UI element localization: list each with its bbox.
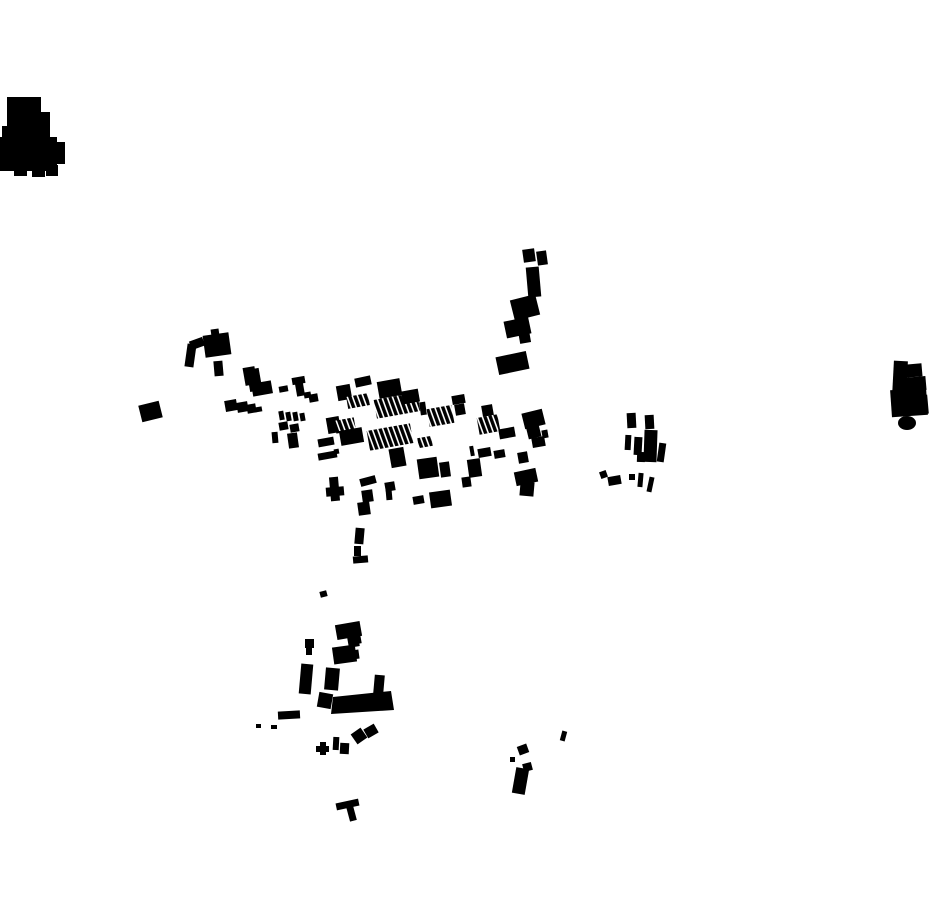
building-footprint xyxy=(629,474,635,480)
building-footprint xyxy=(454,403,466,416)
building-footprint xyxy=(256,724,261,728)
building-footprint xyxy=(510,757,515,762)
building-footprint xyxy=(211,328,220,336)
building-footprint xyxy=(354,546,361,556)
building-footprint xyxy=(417,457,440,480)
building-footprint xyxy=(467,458,482,478)
building-footprint xyxy=(904,363,922,377)
building-footprint xyxy=(518,329,531,344)
building-footprint xyxy=(429,490,452,509)
building-footprint xyxy=(481,404,494,417)
building-footprint xyxy=(278,421,288,430)
building-footprint xyxy=(271,725,277,729)
building-footprint xyxy=(351,650,359,660)
building-footprint xyxy=(324,667,340,690)
building-footprint xyxy=(52,142,65,164)
map-background xyxy=(0,0,930,924)
building-footprint xyxy=(637,452,645,462)
building-footprint xyxy=(289,423,299,432)
building-footprint xyxy=(898,416,916,430)
building-footprint xyxy=(627,413,637,428)
building-footprint xyxy=(46,165,58,176)
building-footprint xyxy=(645,415,655,429)
building-footprint xyxy=(14,165,27,176)
building-footprint xyxy=(643,430,657,462)
building-footprint xyxy=(354,528,364,545)
building-footprint xyxy=(536,250,548,265)
building-footprint xyxy=(625,435,632,450)
building-footprint xyxy=(213,361,223,377)
building-footprint xyxy=(373,675,385,695)
building-footprint xyxy=(203,332,232,357)
building-footprint xyxy=(308,393,318,402)
building-footprint xyxy=(306,646,312,655)
building-terrace-hatched xyxy=(477,414,501,434)
building-footprint xyxy=(340,743,350,754)
building-footprint xyxy=(317,692,333,709)
building-footprint xyxy=(353,555,369,563)
building-footprint xyxy=(326,486,345,497)
building-footprint xyxy=(517,451,529,464)
building-footprint xyxy=(522,248,536,263)
building-footprint xyxy=(386,489,393,500)
building-footprint xyxy=(917,395,929,415)
building-footprint xyxy=(461,476,471,487)
building-footprint xyxy=(333,737,340,750)
map-canvas xyxy=(0,0,930,924)
building-footprint xyxy=(316,746,329,752)
building-footprint xyxy=(278,710,300,719)
building-footprint xyxy=(519,481,534,496)
building-footprint xyxy=(357,501,371,516)
building-footprint xyxy=(361,489,374,502)
building-footprint xyxy=(439,461,451,477)
building-footprint xyxy=(526,266,542,297)
building-footprint xyxy=(272,432,279,443)
building-footprint xyxy=(224,399,238,412)
footprint-map xyxy=(0,0,930,924)
building-footprint xyxy=(32,167,45,177)
building-footprint xyxy=(287,432,299,448)
